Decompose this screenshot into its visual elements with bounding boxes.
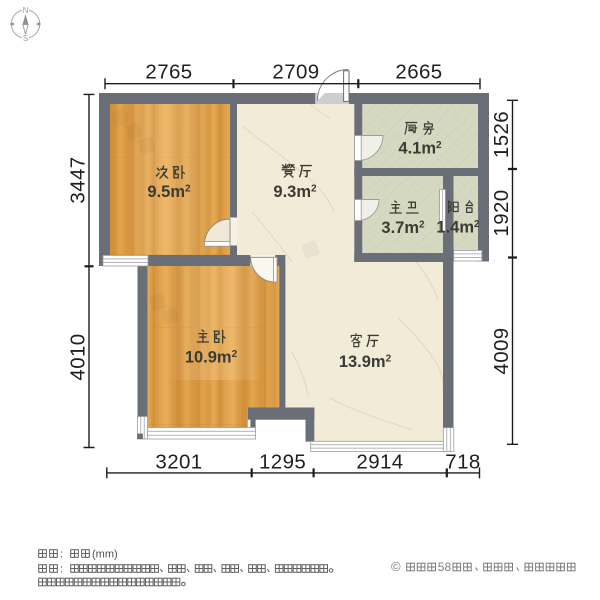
svg-text:4.1m2: 4.1m2 bbox=[398, 140, 442, 158]
svg-text::: : bbox=[60, 549, 63, 561]
svg-text:4009: 4009 bbox=[490, 327, 513, 374]
svg-text:1.4m2: 1.4m2 bbox=[436, 219, 480, 237]
svg-text:10.9m2: 10.9m2 bbox=[185, 349, 238, 367]
svg-text:2765: 2765 bbox=[145, 61, 192, 84]
svg-text:2665: 2665 bbox=[395, 61, 442, 84]
svg-text:S: S bbox=[23, 34, 28, 43]
svg-text:718: 718 bbox=[445, 451, 480, 474]
svg-text:58: 58 bbox=[438, 560, 452, 574]
svg-text:9.3m2: 9.3m2 bbox=[273, 183, 317, 201]
svg-text:3201: 3201 bbox=[155, 451, 202, 474]
svg-text:13.9m2: 13.9m2 bbox=[339, 353, 392, 371]
svg-text:(mm): (mm) bbox=[92, 549, 118, 561]
svg-text:1526: 1526 bbox=[490, 111, 513, 158]
svg-text:3447: 3447 bbox=[67, 156, 90, 203]
svg-text:N: N bbox=[23, 6, 29, 15]
svg-text:2709: 2709 bbox=[272, 61, 319, 84]
svg-text::: : bbox=[60, 564, 63, 576]
svg-text:9.5m2: 9.5m2 bbox=[147, 183, 191, 201]
svg-text:3.7m2: 3.7m2 bbox=[381, 219, 425, 237]
svg-text:1295: 1295 bbox=[259, 451, 306, 474]
svg-text:4010: 4010 bbox=[67, 333, 90, 380]
svg-text:1920: 1920 bbox=[490, 189, 513, 236]
svg-text:2914: 2914 bbox=[356, 451, 403, 474]
svg-text:©: © bbox=[391, 559, 401, 574]
